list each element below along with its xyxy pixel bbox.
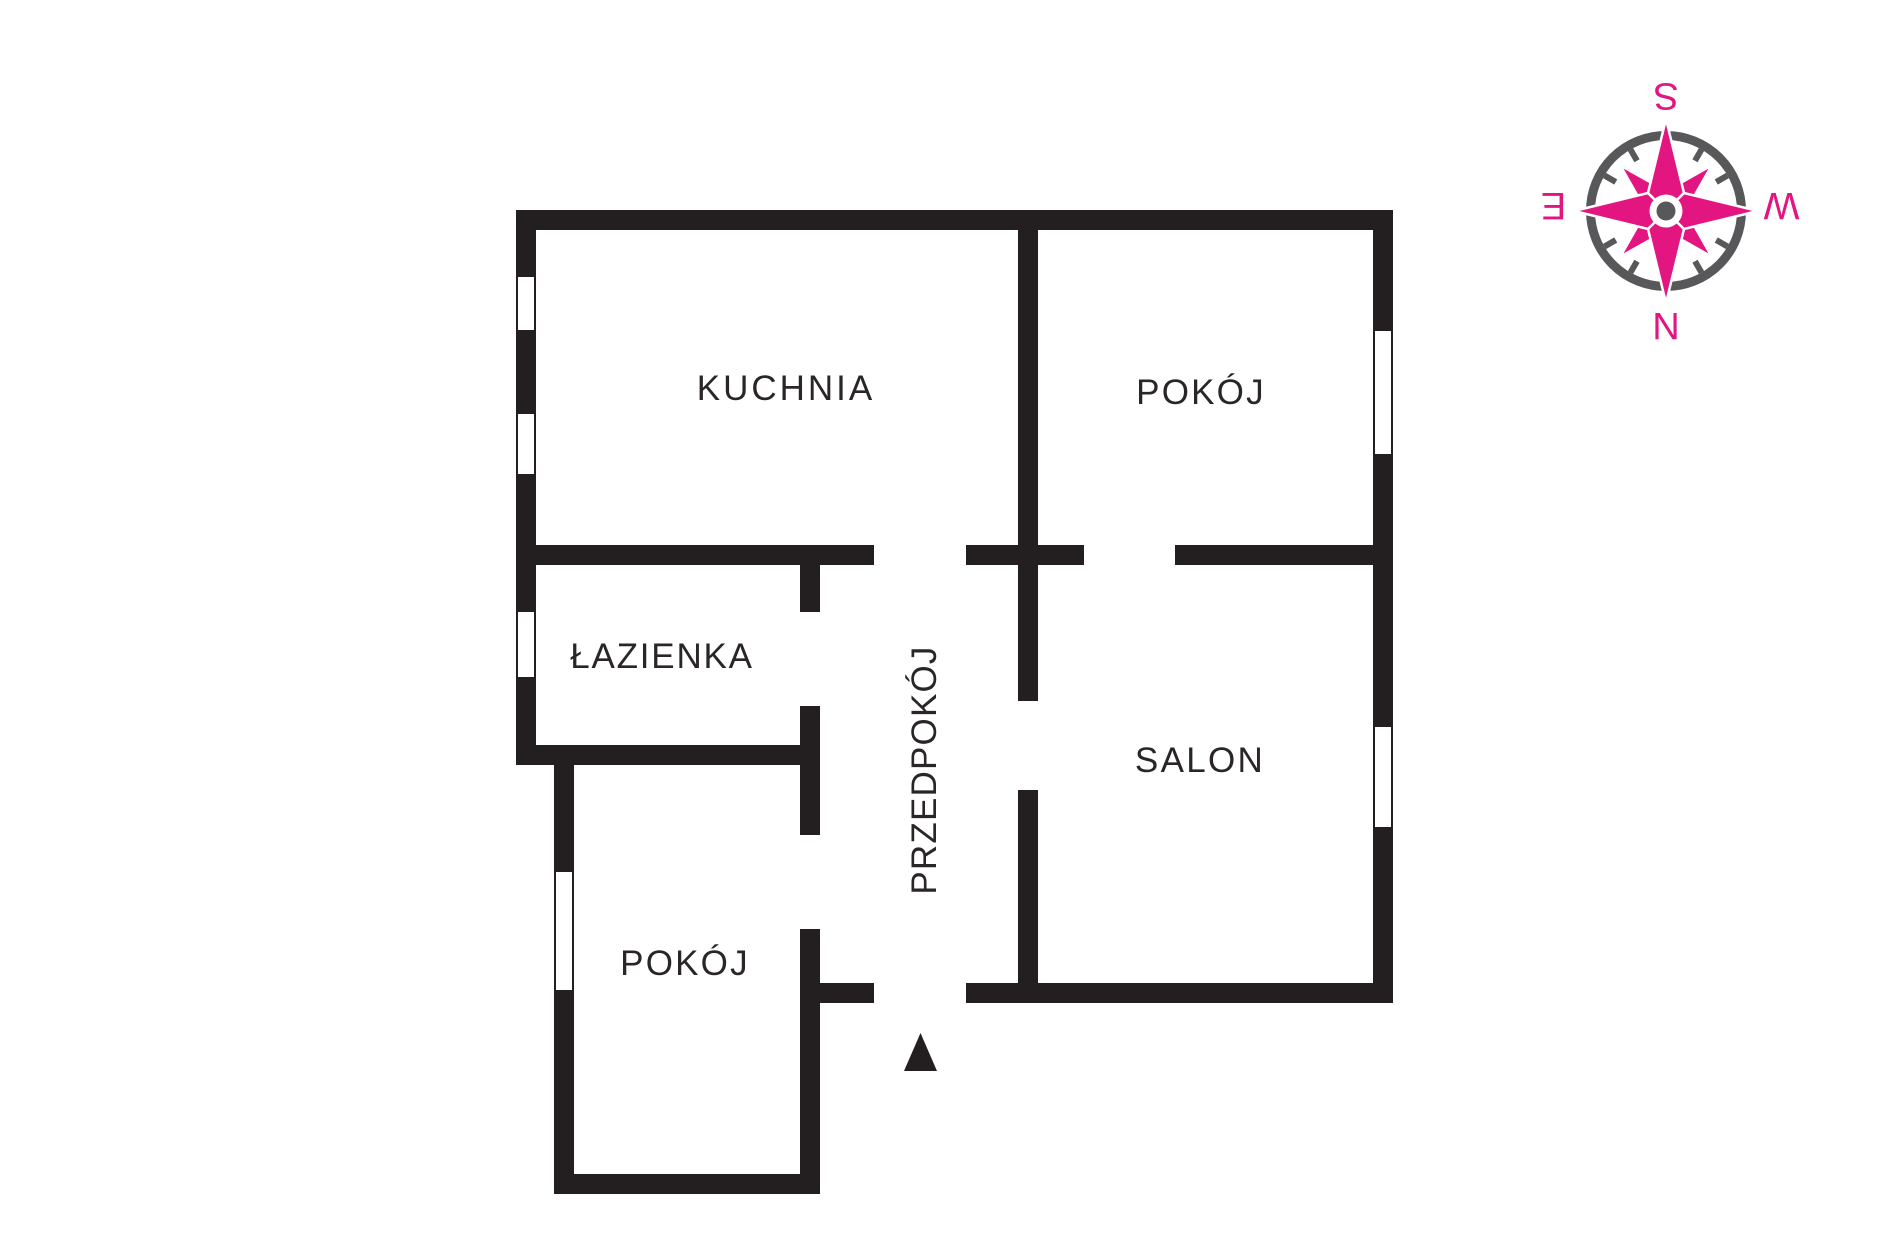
svg-text:PRZEDPOKÓJ: PRZEDPOKÓJ xyxy=(905,645,944,894)
svg-text:ŁAZIENKA: ŁAZIENKA xyxy=(570,637,754,676)
svg-text:KUCHNIA: KUCHNIA xyxy=(697,369,876,408)
svg-text:W: W xyxy=(1763,184,1799,226)
svg-text:POKÓJ: POKÓJ xyxy=(1136,373,1266,412)
svg-text:S: S xyxy=(1653,75,1678,117)
svg-text:N: N xyxy=(1652,304,1679,346)
svg-text:POKÓJ: POKÓJ xyxy=(620,944,750,983)
svg-text:E: E xyxy=(1541,184,1566,226)
svg-text:SALON: SALON xyxy=(1135,741,1265,780)
